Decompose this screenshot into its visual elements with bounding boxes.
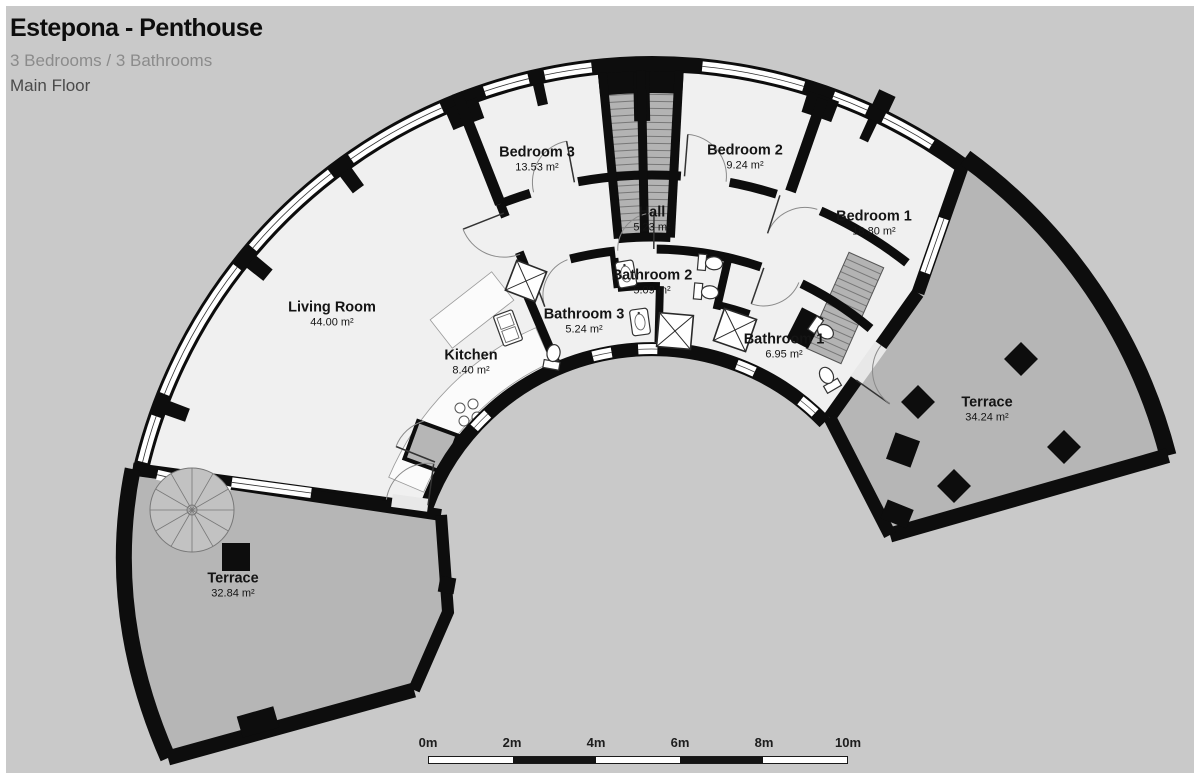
room-label-bathroom-3: Bathroom 3 5.24 m² [544, 307, 625, 338]
room-name: Bathroom 1 [744, 332, 825, 349]
scale-tick-1: 2m [503, 735, 522, 750]
room-area: 13.53 m² [499, 162, 575, 175]
room-name: Hall [633, 205, 670, 222]
room-label-bedroom-2: Bedroom 2 9.24 m² [707, 143, 783, 174]
scale-tick-0: 0m [419, 735, 438, 750]
scale-tick-4: 8m [755, 735, 774, 750]
title-block: Estepona - Penthouse 3 Bedrooms / 3 Bath… [10, 14, 263, 96]
scale-tick-3: 6m [671, 735, 690, 750]
room-area: 6.95 m² [744, 349, 825, 362]
room-label-hall: Hall 5.23 m² [633, 205, 670, 236]
room-name: Bedroom 1 [836, 209, 912, 226]
scale-segment [429, 757, 513, 763]
room-name: Living Room [288, 300, 376, 317]
scale-tick-5: 10m [835, 735, 861, 750]
room-label-bathroom-1: Bathroom 1 6.95 m² [744, 332, 825, 363]
room-area: 32.84 m² [207, 588, 258, 601]
room-area: 9.24 m² [707, 160, 783, 173]
room-label-terrace-left: Terrace 32.84 m² [207, 571, 258, 602]
room-area: 5.09 m² [612, 285, 693, 298]
room-name: Bathroom 3 [544, 307, 625, 324]
room-name: Bedroom 3 [499, 145, 575, 162]
page-subtitle: 3 Bedrooms / 3 Bathrooms [10, 51, 263, 71]
room-area: 44.00 m² [288, 317, 376, 330]
room-area: 5.23 m² [633, 222, 670, 235]
scale-segment [763, 757, 847, 763]
floor-plan-svg [0, 0, 1200, 779]
scale-bar: 0m 2m 4m 6m 8m 10m [428, 735, 848, 769]
scale-segment [680, 757, 764, 763]
floor-plan-page: Estepona - Penthouse 3 Bedrooms / 3 Bath… [0, 0, 1200, 779]
sink-icon [629, 308, 650, 336]
room-label-bedroom-3: Bedroom 3 13.53 m² [499, 145, 575, 176]
room-name: Bedroom 2 [707, 143, 783, 160]
page-title: Estepona - Penthouse [10, 14, 263, 43]
room-area: 8.40 m² [444, 365, 497, 378]
room-label-bedroom-1: Bedroom 1 18.80 m² [836, 209, 912, 240]
scale-bar-ruler [428, 756, 848, 764]
room-label-terrace-right: Terrace 34.24 m² [961, 395, 1012, 426]
room-label-bathroom-2: Bathroom 2 5.09 m² [612, 268, 693, 299]
scale-segment [513, 757, 597, 763]
shower-icon [657, 313, 694, 350]
scale-tick-2: 4m [587, 735, 606, 750]
room-area: 5.24 m² [544, 324, 625, 337]
room-name: Bathroom 2 [612, 268, 693, 285]
scale-segment [596, 757, 680, 763]
room-name: Terrace [207, 571, 258, 588]
room-name: Terrace [961, 395, 1012, 412]
room-area: 18.80 m² [836, 226, 912, 239]
room-name: Kitchen [444, 348, 497, 365]
room-area: 34.24 m² [961, 412, 1012, 425]
room-label-living-room: Living Room 44.00 m² [288, 300, 376, 331]
floor-label: Main Floor [10, 76, 263, 96]
room-label-kitchen: Kitchen 8.40 m² [444, 348, 497, 379]
spiral-staircase [150, 468, 234, 552]
